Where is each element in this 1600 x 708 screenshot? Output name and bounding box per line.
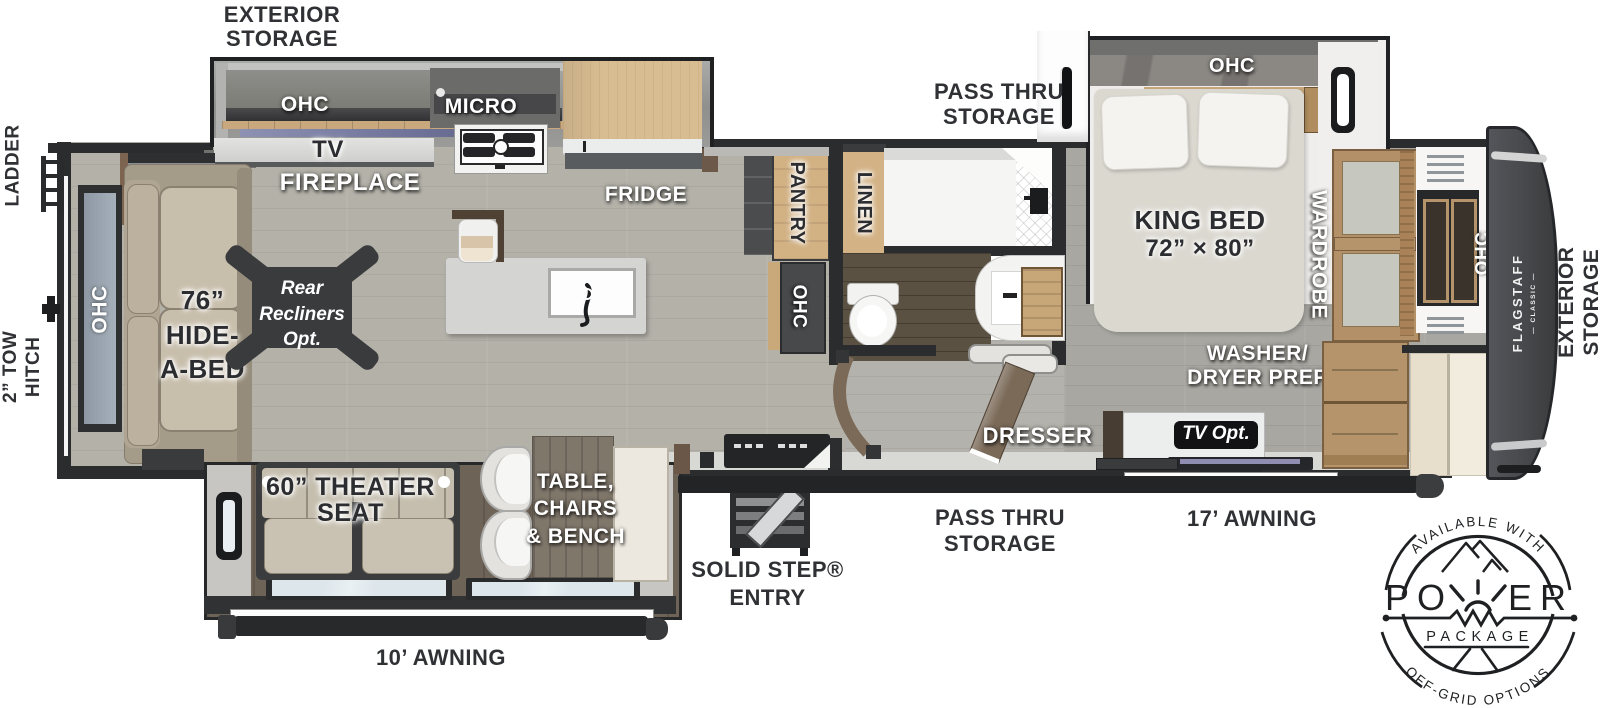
svg-text:OFF-GRID OPTIONS: OFF-GRID OPTIONS bbox=[1403, 664, 1554, 708]
svg-text:PO: PO bbox=[1385, 577, 1453, 618]
svg-text:PACKAGE: PACKAGE bbox=[1426, 629, 1534, 645]
svg-text:ER: ER bbox=[1508, 577, 1574, 618]
